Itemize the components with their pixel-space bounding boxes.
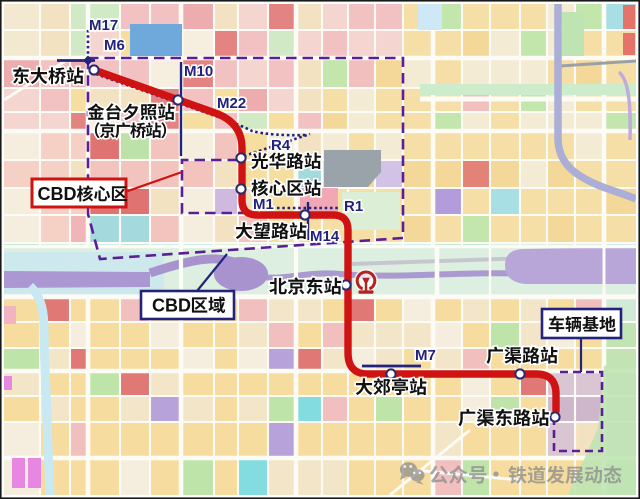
svg-text:R1: R1 <box>344 198 363 215</box>
svg-text:M7: M7 <box>415 347 436 364</box>
svg-text:M14: M14 <box>310 228 340 245</box>
svg-text:M22: M22 <box>217 95 246 112</box>
svg-text:CBD: CBD <box>38 184 77 204</box>
svg-text:M1: M1 <box>253 196 274 213</box>
svg-text:M10: M10 <box>184 63 213 80</box>
svg-text:CBD: CBD <box>152 296 191 316</box>
svg-text:M6: M6 <box>104 37 125 54</box>
svg-text:M17: M17 <box>89 17 118 34</box>
